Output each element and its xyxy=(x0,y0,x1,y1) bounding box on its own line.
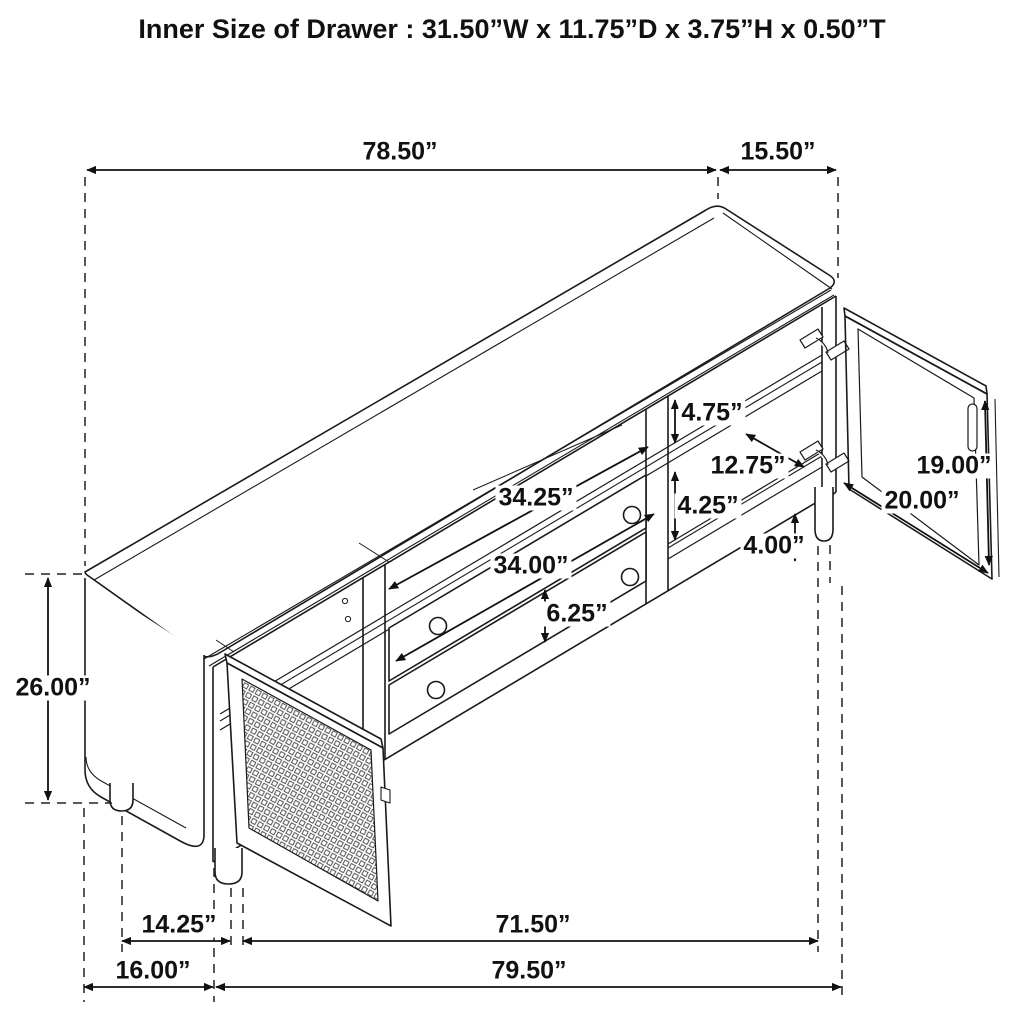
dimension-label-upper-shelf-height: 4.75” xyxy=(678,401,745,426)
dimension-diagram-page: Inner Size of Drawer : 31.50”W x 11.75”D… xyxy=(0,0,1024,1024)
leg-front-right xyxy=(815,487,833,541)
cane-door-handle xyxy=(381,787,390,803)
leg-front-left xyxy=(215,848,242,884)
hinges xyxy=(800,329,849,472)
dimension-label-drawer-front-height: 6.25” xyxy=(543,602,610,627)
dimension-label-overall-length: 79.50” xyxy=(488,959,569,984)
dimension-label-leg-inset: 14.25” xyxy=(138,913,219,938)
dimension-label-door-width: 20.00” xyxy=(881,489,962,514)
dimension-label-door-height: 19.00” xyxy=(913,454,994,479)
dimension-label-top-width: 78.50” xyxy=(359,140,440,165)
glass-door-handle xyxy=(968,404,977,451)
drawer-knob xyxy=(430,618,447,635)
dimension-label-leg-span: 71.50” xyxy=(492,913,573,938)
furniture-diagram xyxy=(0,0,1024,1024)
dimension-label-middle-shelf-height: 4.25” xyxy=(674,494,741,519)
dimension-label-floor-clearance: 4.00” xyxy=(740,534,807,559)
drawer-knob xyxy=(622,569,639,586)
drawer-knob xyxy=(428,682,445,699)
cane-door xyxy=(225,654,391,926)
cabinet-drawing xyxy=(85,206,849,884)
dimension-label-end-overhang: 16.00” xyxy=(112,959,193,984)
drawer-knob xyxy=(624,507,641,524)
dimension-label-overall-height: 26.00” xyxy=(12,676,93,701)
dimension-label-upper-opening-width: 34.25” xyxy=(495,486,576,511)
glass-door xyxy=(844,308,999,579)
dimension-label-drawer-front-width: 34.00” xyxy=(490,554,571,579)
dimension-label-top-depth: 15.50” xyxy=(737,140,818,165)
leg-back-left xyxy=(110,783,133,811)
dimension-label-shelf-depth: 12.75” xyxy=(707,454,788,479)
